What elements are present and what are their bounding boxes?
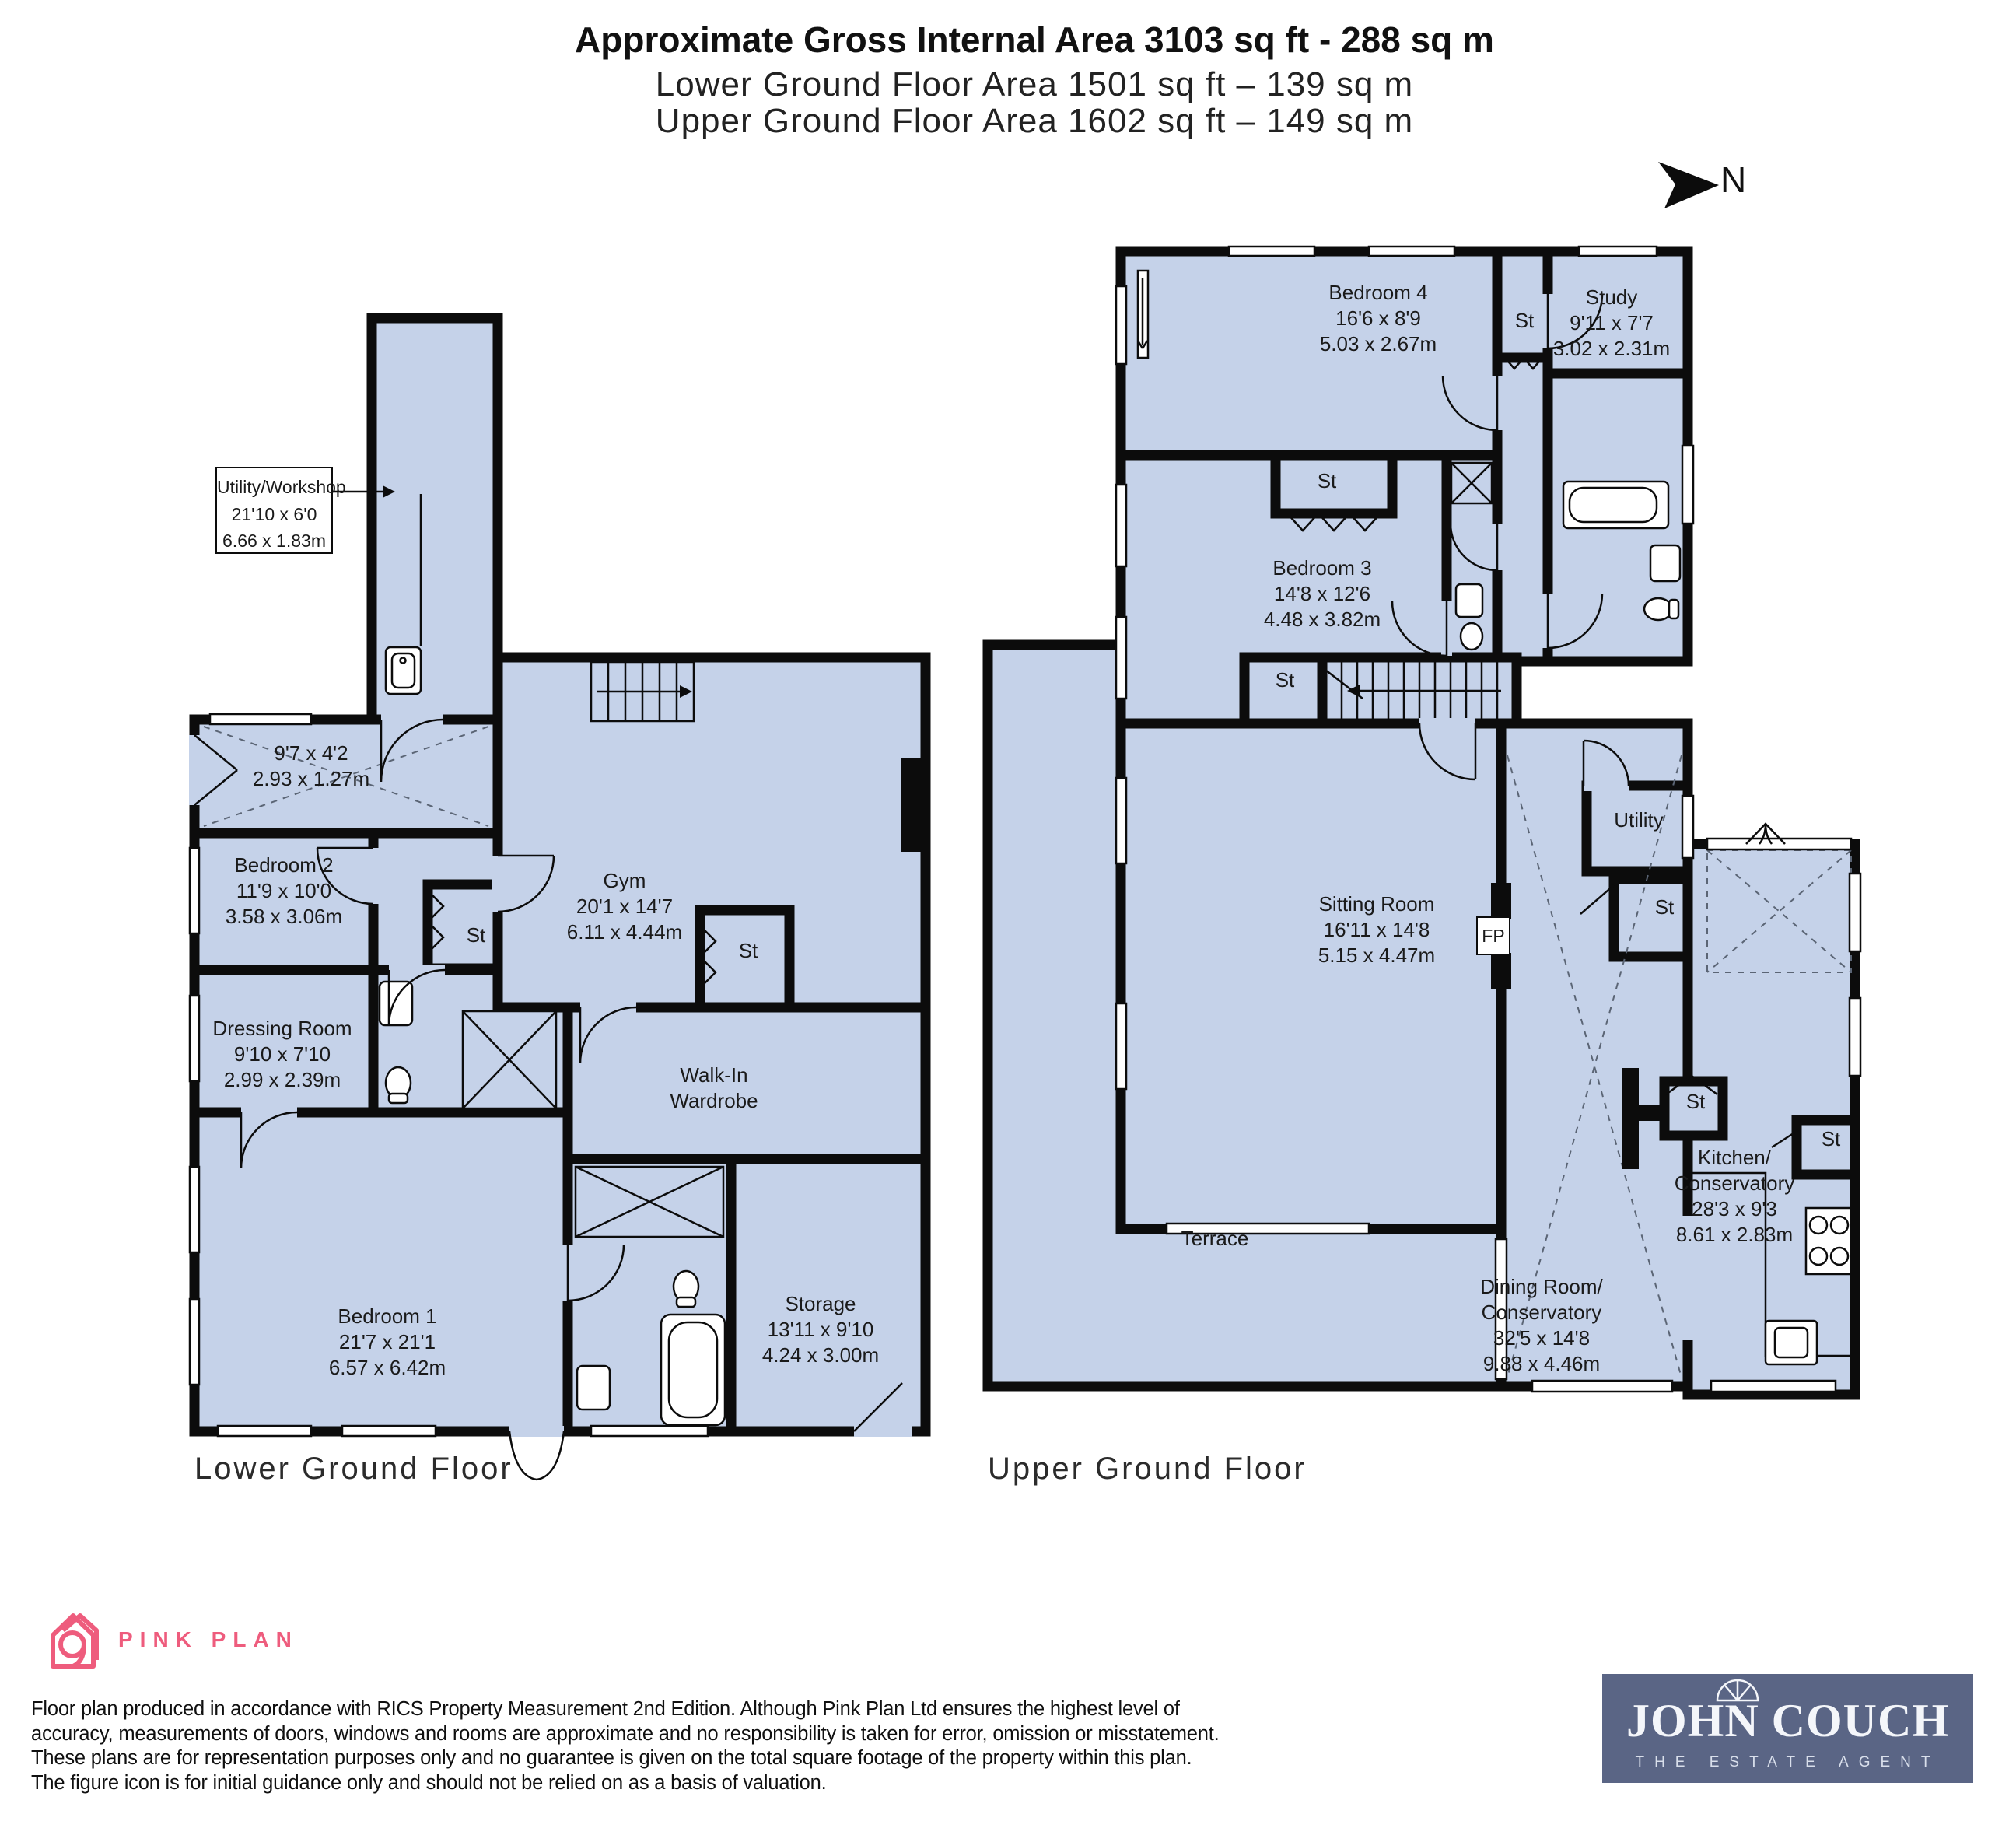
disclaimer-text: Floor plan produced in accordance with R… (31, 1697, 1221, 1795)
room-label-gym: Gym 20'1 x 14'7 6.11 x 4.44m (567, 868, 682, 945)
room-size-imperial: 21'10 x 6'0 (217, 501, 331, 528)
uf-hob-icon (1806, 1208, 1851, 1274)
room-label-utility: Utility (1614, 807, 1664, 833)
page-title: Approximate Gross Internal Area 3103 sq … (575, 19, 1494, 61)
window (1369, 247, 1454, 256)
window (1682, 796, 1693, 858)
room-name: Utility/Workshop (217, 474, 331, 501)
window (1116, 617, 1126, 699)
uf-fp-block2 (1491, 953, 1511, 989)
st-label-2: St (739, 938, 758, 964)
upper-floor-caption: Upper Ground Floor (988, 1452, 1307, 1487)
uf-wall-stub2 (1639, 1105, 1667, 1121)
room-label-terrace: Terrace (1181, 1226, 1249, 1252)
lf-basin-icon (380, 982, 412, 1025)
window (591, 1426, 708, 1436)
window (190, 1167, 199, 1252)
lf-basin2-icon (577, 1366, 610, 1410)
window (190, 996, 199, 1081)
lf-shower-icon (463, 1011, 556, 1108)
window (1850, 998, 1860, 1076)
st-label-a: St (1515, 308, 1535, 334)
window (210, 714, 311, 724)
st-label-b: St (1318, 468, 1337, 494)
uf-sink-icon (1766, 1321, 1817, 1364)
st-label-1: St (467, 923, 486, 948)
agent-logo: JOHN COUCH THE ESTATE AGENT (1602, 1674, 1973, 1783)
room-label-storage: Storage 13'11 x 9'10 4.24 x 3.00m (762, 1291, 879, 1368)
window (1116, 778, 1126, 863)
window (1116, 485, 1126, 566)
window (1116, 1003, 1126, 1089)
north-label: N (1720, 159, 1746, 201)
window (1229, 247, 1314, 256)
lf-st-closet-1 (428, 884, 498, 968)
uf-st-closet-a (1497, 251, 1548, 358)
uf-bedroom4-room (1121, 251, 1497, 455)
lf-toilet-icon (386, 1067, 411, 1103)
uf-window-glyph (1138, 271, 1148, 358)
room-label-bedroom-2: Bedroom 2 11'9 x 10'0 3.58 x 3.06m (226, 853, 342, 930)
lf-chimney (901, 758, 926, 852)
room-label-study: Study 9'11 x 7'7 3.02 x 2.31m (1553, 285, 1670, 362)
window (342, 1426, 436, 1436)
window (1850, 874, 1860, 951)
window (1682, 446, 1693, 524)
st-label-e: St (1686, 1089, 1706, 1115)
uf-shower-icon (1451, 463, 1492, 503)
st-label-d: St (1655, 895, 1675, 920)
window (190, 1299, 199, 1385)
window (1532, 1381, 1672, 1392)
room-label-dressing-room: Dressing Room 9'10 x 7'10 2.99 x 2.39m (212, 1016, 352, 1093)
room-size-metric: 6.66 x 1.83m (217, 527, 331, 555)
lower-floor-caption: Lower Ground Floor (194, 1452, 513, 1487)
utility-workshop-label-box: Utility/Workshop 21'10 x 6'0 6.66 x 1.83… (215, 467, 333, 554)
st-label-c: St (1276, 667, 1295, 693)
window (1116, 286, 1126, 364)
room-label-sitting-room: Sitting Room 16'11 x 14'8 5.15 x 4.47m (1318, 891, 1435, 968)
pink-plan-brand: PINK PLAN (118, 1627, 299, 1652)
room-label-dining-conservatory: Dining Room/ Conservatory 32'5 x 14'8 9.… (1480, 1274, 1603, 1377)
window (1707, 839, 1851, 849)
uf-basin-icon (1650, 545, 1680, 581)
st-label-f: St (1822, 1126, 1841, 1152)
room-label-bedroom-1: Bedroom 1 21'7 x 21'1 6.57 x 6.42m (329, 1304, 446, 1381)
room-label-bedroom-3: Bedroom 3 14'8 x 12'6 4.48 x 3.82m (1264, 555, 1381, 632)
lf-toilet2-icon (674, 1271, 698, 1307)
uf-st-closet-d (1614, 879, 1688, 957)
uf-fp-block1 (1491, 883, 1511, 919)
lf-bath-icon (661, 1315, 725, 1425)
uf-bath-icon (1563, 482, 1668, 528)
subtitle-upper-ground: Upper Ground Floor Area 1602 sq ft – 149… (656, 102, 1413, 141)
window (1711, 1381, 1836, 1392)
room-label-hall: 9'7 x 4'2 2.93 x 1.27m (253, 741, 369, 792)
window (218, 1426, 311, 1436)
uf-corridor (1497, 358, 1548, 661)
pink-plan-logo-icon (47, 1606, 102, 1671)
uf-basin2-icon (1456, 584, 1482, 617)
agent-name: JOHN COUCH (1602, 1694, 1973, 1748)
agent-arch-icon (1716, 1679, 1759, 1702)
fireplace-label: FP (1476, 916, 1510, 955)
window (1579, 247, 1657, 256)
uf-sitting-room (1121, 723, 1501, 1229)
subtitle-lower-ground: Lower Ground Floor Area 1501 sq ft – 139… (656, 65, 1413, 104)
uf-toilet2-icon (1461, 623, 1482, 650)
north-arrow-icon (1655, 156, 1725, 215)
agent-tagline: THE ESTATE AGENT (1602, 1754, 1973, 1771)
room-label-walk-in-wardrobe: Walk-In Wardrobe (670, 1063, 758, 1114)
window (190, 848, 199, 933)
uf-wall-stub (1622, 1068, 1639, 1169)
room-label-kitchen-conservatory: Kitchen/ Conservatory 28'3 x 9'3 8.61 x … (1675, 1145, 1795, 1248)
lf-bedroom1-room (194, 1112, 568, 1431)
room-label-bedroom-4: Bedroom 4 16'6 x 8'9 5.03 x 2.67m (1320, 280, 1437, 357)
uf-toilet-icon (1644, 598, 1678, 620)
